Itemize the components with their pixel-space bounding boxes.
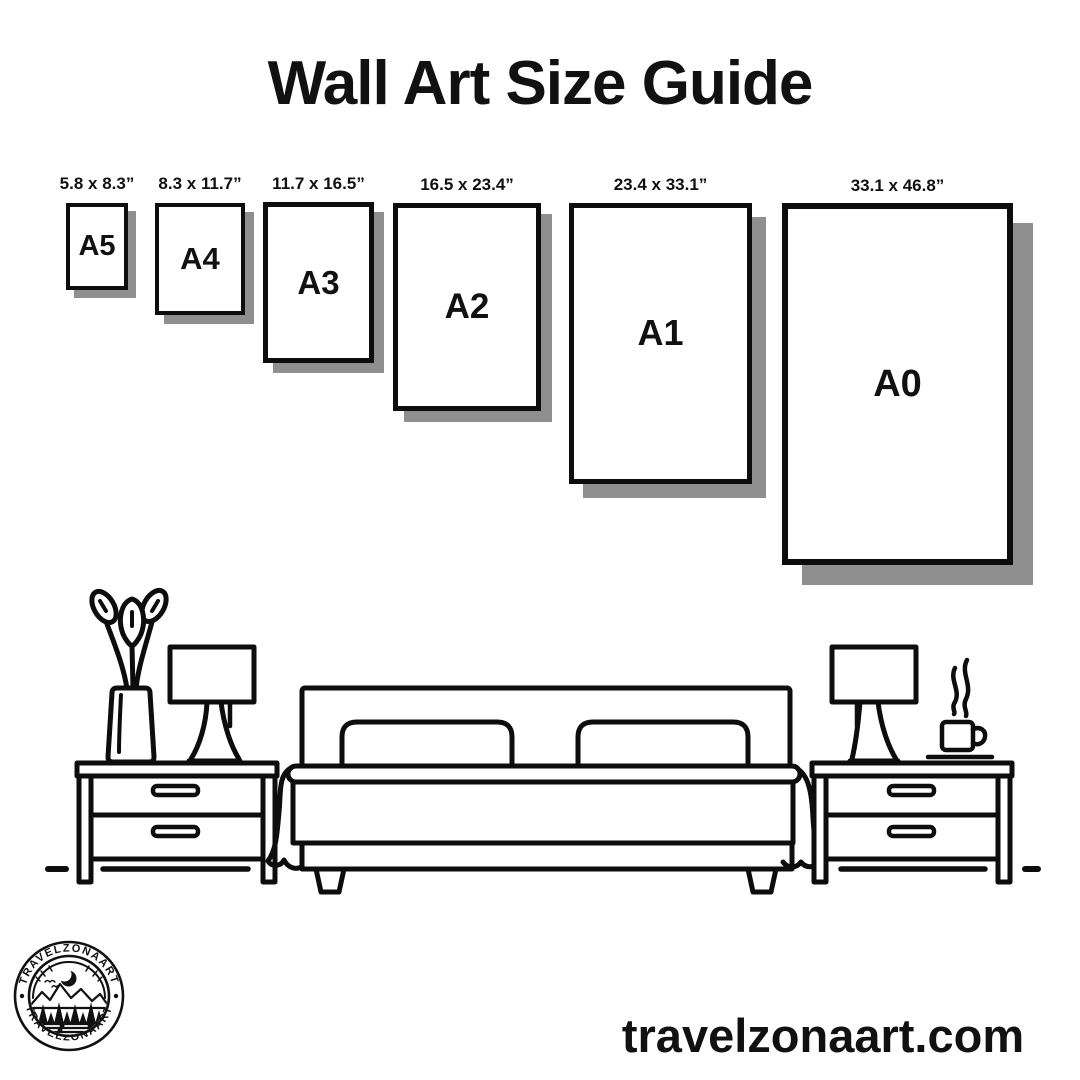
paper-size-a3: 11.7 x 16.5” A3 [263,202,374,363]
paper-size-a4: 8.3 x 11.7” A4 [155,203,245,315]
page-title: Wall Art Size Guide [0,48,1080,119]
paper-name-label: A4 [180,241,220,277]
paper-dimensions-label: 33.1 x 46.8” [851,176,945,196]
logo-dot-left [20,994,24,998]
paper-name-label: A3 [297,264,339,302]
nightstand-left [77,763,277,882]
paper-size-a2: 16.5 x 23.4” A2 [393,203,541,411]
paper-size-a5: 5.8 x 8.3” A5 [66,203,128,290]
paper-dimensions-label: 5.8 x 8.3” [60,174,135,194]
bed-illustration [268,688,821,892]
paper-name-label: A2 [445,287,490,327]
paper-dimensions-label: 8.3 x 11.7” [158,174,241,194]
lamp-left-icon [170,647,254,761]
paper-dimensions-label: 11.7 x 16.5” [272,174,365,194]
brand-logo: TRAVELZONAART TRAVELZONAART [9,936,129,1056]
paper-name-label: A0 [873,363,922,406]
paper-size-a0: 33.1 x 46.8” A0 [782,203,1013,565]
website-url: travelzonaart.com [560,1008,1080,1063]
paper-size-a1: 23.4 x 33.1” A1 [569,203,752,484]
paper-name-label: A5 [78,230,115,263]
paper-dimensions-label: 23.4 x 33.1” [614,175,708,195]
coffee-cup-icon [928,660,992,757]
nightstand-right [812,763,1012,882]
paper-name-label: A1 [637,312,683,354]
logo-dot-right [114,994,118,998]
paper-dimensions-label: 16.5 x 23.4” [420,175,514,195]
mountains-icon [28,984,110,1008]
plant-icon [87,586,171,762]
steam-icon [953,668,956,714]
steam-icon [965,660,969,716]
lamp-right-icon [832,647,916,761]
